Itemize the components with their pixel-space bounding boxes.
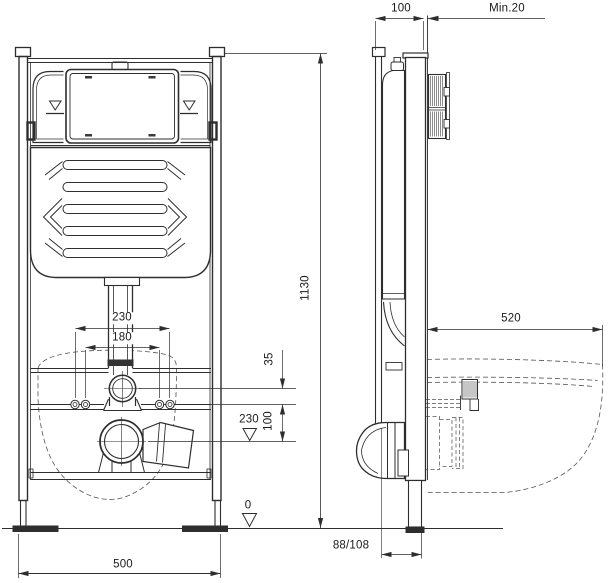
dim-front-floor-level: 0 [245, 500, 252, 512]
dim-side-drain-offset: 88/108 [333, 540, 369, 552]
dim-front-bolt-to-drain: 100 [263, 411, 275, 431]
flush-actuator-block [429, 73, 450, 140]
level-marker-floor-triangle [243, 514, 257, 527]
side-view [224, 16, 603, 559]
drain-pipe-dashed-side [426, 417, 463, 470]
dim-side-min-wall: Min.20 [489, 3, 525, 15]
water-level-symbol-left [46, 101, 64, 114]
cistern-tank-front [31, 148, 211, 278]
dim-front-width: 500 [113, 559, 133, 571]
dim-front-supply-offset: 35 [264, 352, 276, 365]
bowl-outline-dashed-side [427, 359, 603, 493]
dim-front-bolt-spacing-outer: 230 [110, 312, 134, 324]
water-level-symbol-right [180, 101, 198, 114]
dim-front-bolt-spacing-inner: 180 [110, 332, 134, 344]
dim-side-height: 1130 [300, 275, 312, 301]
dim-front-drain-level: 230 [239, 414, 259, 426]
flush-pipe [104, 278, 142, 411]
flush-plate-assembly [28, 62, 217, 146]
drain-elbow-fitting [143, 423, 194, 469]
technical-drawing-page: 100 Min.20 1130 230 180 35 100 230 0 500… [0, 0, 608, 583]
water-supply-stub-side [426, 380, 479, 411]
drain-elbow-side [357, 423, 409, 559]
drain-assembly-front [97, 417, 194, 473]
side-dimensions [318, 16, 603, 559]
level-marker-drain-triangle [243, 429, 257, 441]
dim-side-frame-depth: 100 [391, 3, 411, 15]
side-dim-arrows [318, 16, 603, 557]
front-view [13, 48, 296, 579]
dim-side-bowl-depth: 520 [501, 313, 521, 325]
side-frame-and-cistern [373, 48, 405, 425]
